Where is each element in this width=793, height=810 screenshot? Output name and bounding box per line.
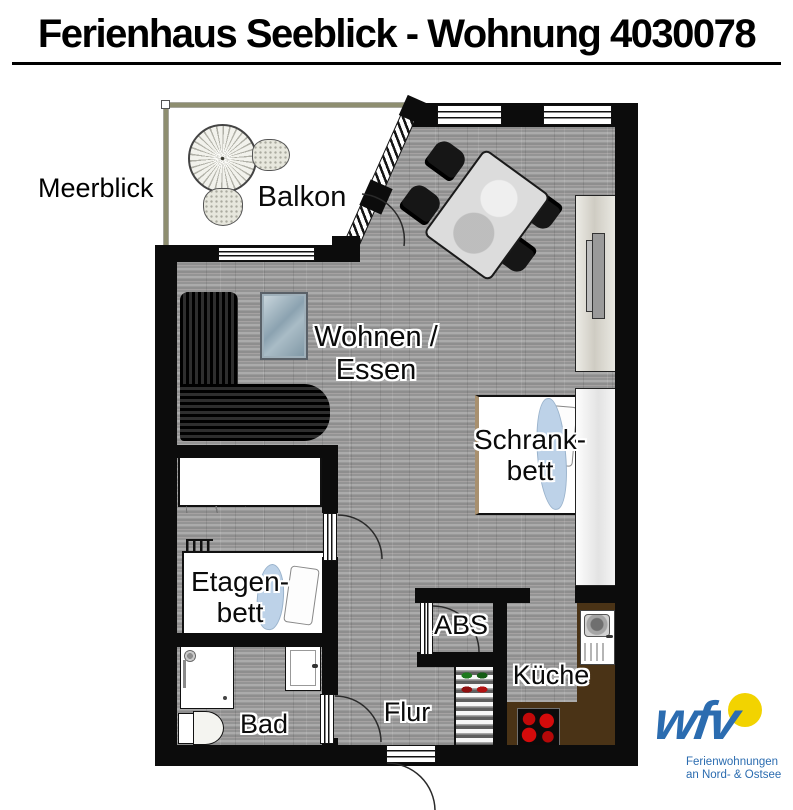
wall-living-kids	[177, 445, 338, 458]
balcony-window	[218, 247, 315, 261]
bathroom-door	[320, 694, 334, 744]
tv	[260, 292, 308, 360]
abs-top-wall	[415, 588, 530, 603]
wohnen-line2: Essen	[314, 354, 438, 387]
page-title: Ferienhaus Seeblick - Wohnung 4030078	[12, 12, 781, 65]
kids-room-door	[323, 513, 337, 561]
wardrobe-hooks	[186, 506, 246, 513]
entrance-door-swing-arc	[387, 763, 435, 810]
etagenbett-label: Etagen- bett	[191, 566, 289, 628]
shoes-green	[457, 669, 492, 682]
schrankbett-line1: Schrank-	[474, 424, 586, 455]
bad-label: Bad	[240, 709, 288, 740]
logo-brand: wfv	[651, 694, 740, 748]
kitchen-sink	[580, 610, 615, 665]
railing-top	[164, 103, 416, 107]
wardrobe	[178, 456, 322, 507]
abs-label: ABS	[434, 610, 488, 641]
balkon-label: Balkon	[258, 182, 347, 213]
flur-label: Flur	[384, 697, 431, 728]
balcony-chair-bottom	[203, 188, 243, 226]
meerblick-label: Meerblick	[38, 173, 154, 204]
floor-plan-page: Ferienhaus Seeblick - Wohnung 4030078	[0, 0, 793, 810]
kueche-label: Küche	[513, 660, 590, 691]
left-wall	[155, 245, 177, 766]
wall-mid-upper	[322, 445, 338, 513]
right-wall	[615, 103, 638, 766]
washbasin-faucet	[312, 664, 318, 668]
cabinet-bottom-wall	[575, 586, 617, 603]
railing-left	[164, 103, 168, 252]
balcony-table	[188, 124, 257, 193]
shower-rail	[183, 660, 186, 688]
kitchen-left-wall	[493, 588, 507, 745]
shower	[180, 645, 234, 709]
washbasin	[285, 645, 321, 691]
shower-drain	[223, 696, 227, 700]
wall-kids-bath	[177, 633, 338, 647]
window-top-2	[543, 105, 612, 125]
schrankbett-line2: bett	[474, 455, 586, 486]
balcony-chair-right	[252, 139, 290, 171]
window-top-1	[437, 105, 502, 125]
sink-basin	[584, 614, 610, 637]
wohnen-line1: Wohnen /	[314, 321, 438, 354]
corner-sofa-horizontal	[180, 384, 330, 441]
wall-mid-lower	[322, 557, 338, 695]
corner-block	[332, 236, 360, 262]
tall-cabinet	[575, 388, 618, 586]
wohnen-essen-label: Wohnen / Essen	[314, 321, 438, 387]
sink-faucet	[606, 635, 613, 638]
etagenbett-line2: bett	[191, 597, 289, 628]
sideboard-tv	[592, 233, 605, 319]
etagenbett-line1: Etagen-	[191, 566, 289, 597]
logo-tagline: Ferienwohnungen an Nord- & Ostsee	[686, 756, 781, 782]
shoes-red	[457, 683, 492, 696]
logo-tagline-line2: an Nord- & Ostsee	[686, 769, 781, 782]
schrankbett-label: Schrank- bett	[474, 424, 586, 486]
stove	[517, 708, 560, 747]
railing-corner	[161, 100, 170, 109]
sink-drainboard	[584, 643, 608, 661]
abs-door	[420, 602, 433, 655]
toilet-tank	[178, 713, 194, 744]
entrance-door	[386, 745, 436, 763]
logo-tagline-line1: Ferienwohnungen	[686, 756, 781, 769]
